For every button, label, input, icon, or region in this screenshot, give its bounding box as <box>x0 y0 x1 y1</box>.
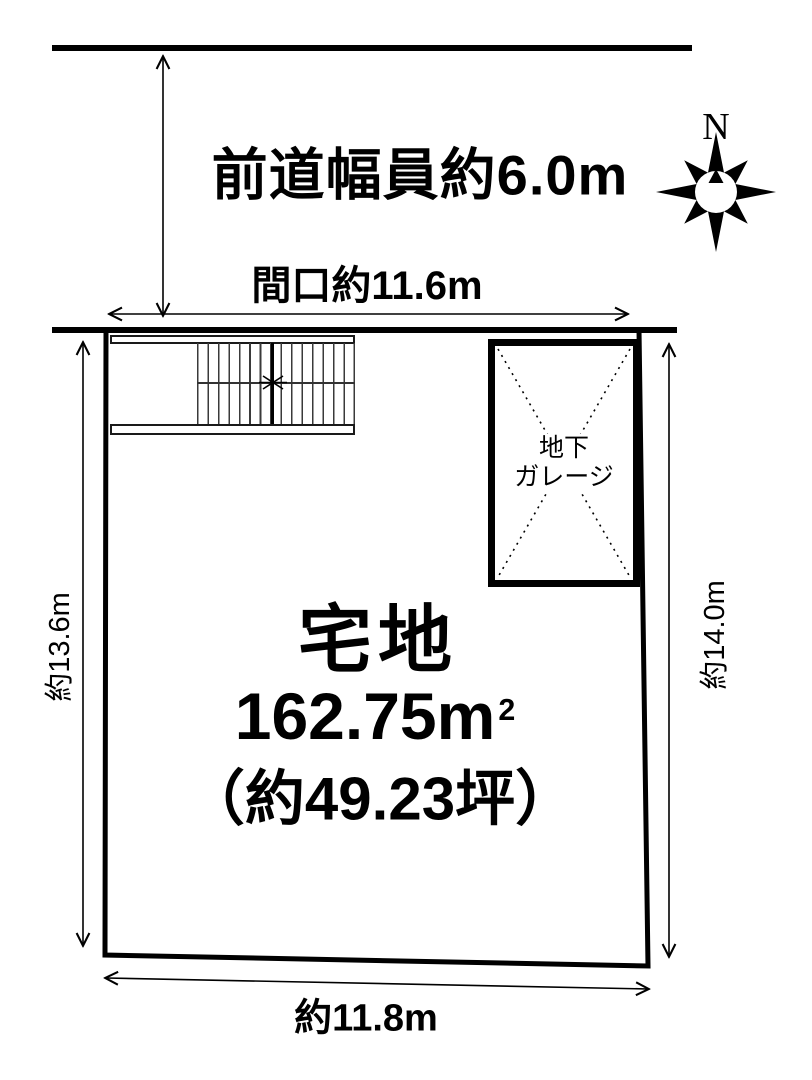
plot-tsubo-label: （約49.23坪） <box>185 751 575 838</box>
compass-rose: N <box>646 95 786 259</box>
garage-label: 地下 ガレージ <box>511 434 617 492</box>
road-width-label: 前道幅員約6.0m <box>212 131 629 212</box>
garage-box: 地下 ガレージ <box>488 339 640 587</box>
garage-label-line2: ガレージ <box>514 463 614 492</box>
plot-type-label: 宅地 <box>298 581 458 688</box>
left-dimension-label: 約13.6m <box>36 592 78 702</box>
right-dimension-label: 約14.0m <box>691 580 733 690</box>
land-plot-diagram: 地下 ガレージ N 前道幅員約6.0m 間口約11.6m 約13.6m 約14.… <box>0 0 812 1080</box>
bottom-dimension-label: 約11.8m <box>294 987 438 1042</box>
stairs-bottom-rail <box>110 424 355 435</box>
frontage-label: 間口約11.6m <box>251 253 482 311</box>
plot-area-label: 162.75m2 <box>235 678 515 754</box>
plot-area-superscript: 2 <box>498 694 515 727</box>
stairs-break-mark-icon <box>259 372 287 393</box>
plot-area-value: 162.75m <box>235 679 496 753</box>
garage-label-line1: 地下 <box>514 434 614 463</box>
